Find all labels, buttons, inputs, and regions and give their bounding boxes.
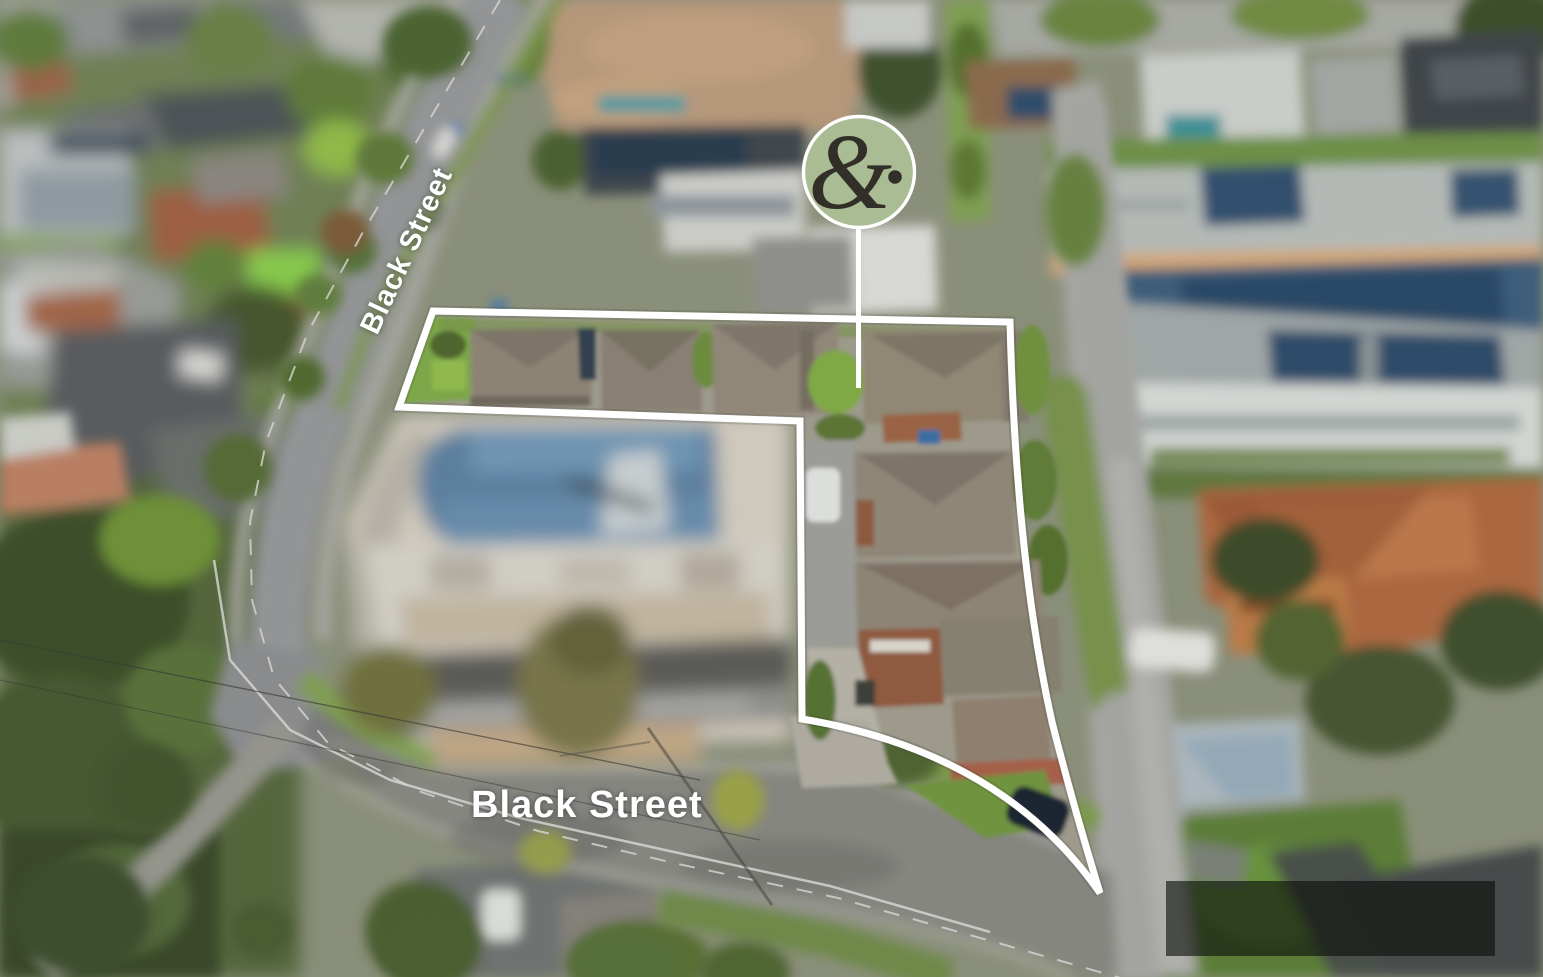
svg-text:&: &: [808, 113, 892, 232]
svg-text:Black Street: Black Street: [471, 784, 703, 826]
